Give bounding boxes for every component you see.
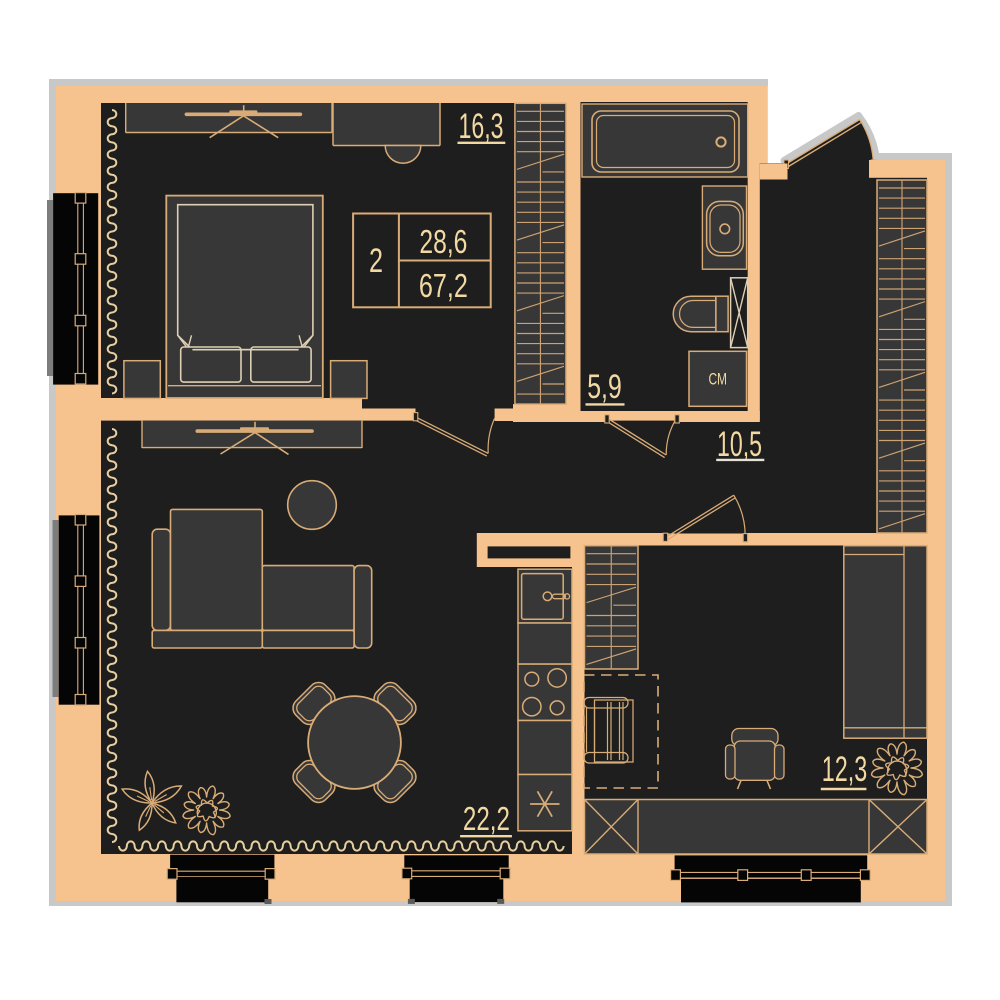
svg-text:СМ: СМ <box>708 371 727 389</box>
svg-text:28,6: 28,6 <box>419 223 467 260</box>
svg-text:16,3: 16,3 <box>459 107 504 146</box>
svg-text:12,3: 12,3 <box>822 750 868 789</box>
svg-text:5,9: 5,9 <box>587 368 622 406</box>
svg-text:2: 2 <box>369 242 383 280</box>
svg-text:22,2: 22,2 <box>463 800 510 837</box>
svg-text:67,2: 67,2 <box>419 267 468 304</box>
svg-text:10,5: 10,5 <box>717 425 762 464</box>
